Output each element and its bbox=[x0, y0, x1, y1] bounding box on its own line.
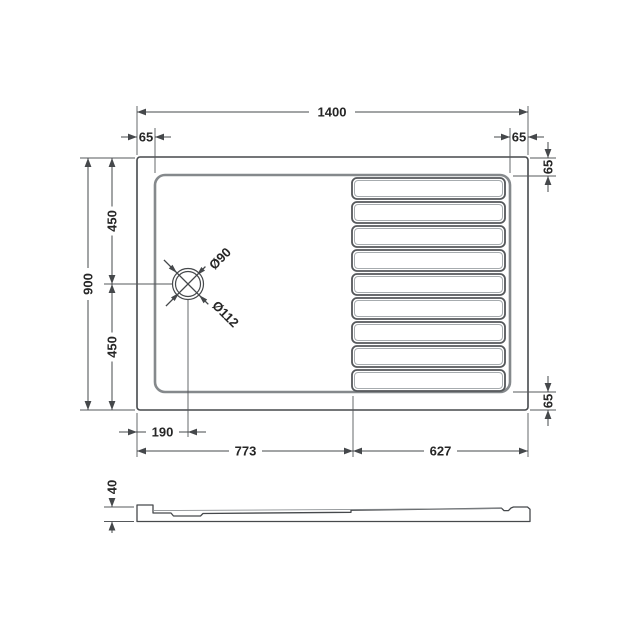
anti-slip-slats bbox=[352, 178, 505, 391]
dim-profile-height: 40 bbox=[104, 476, 134, 533]
dim-profile-height-label: 40 bbox=[105, 480, 120, 494]
dim-overall-depth-label: 900 bbox=[81, 273, 96, 295]
slat bbox=[352, 322, 505, 343]
dim-rim-right-bottom: 65 bbox=[541, 376, 556, 426]
dim-left-section-label: 773 bbox=[235, 444, 257, 459]
slat bbox=[352, 178, 505, 199]
dim-drain-offset-label: 190 bbox=[152, 425, 174, 440]
dim-left-section: 773 bbox=[137, 444, 353, 459]
dim-rim-top-right-label: 65 bbox=[512, 130, 526, 145]
dim-overall-depth: 900 bbox=[81, 158, 96, 410]
slat bbox=[352, 202, 505, 223]
slat bbox=[352, 274, 505, 295]
side-profile-view: 40 bbox=[104, 476, 530, 533]
dim-depth-lower-label: 450 bbox=[105, 336, 120, 358]
dim-depth-upper: 450 bbox=[105, 158, 120, 284]
dim-drain-offset: 190 bbox=[119, 425, 206, 440]
technical-drawing: Ø90 Ø112 1400 bbox=[0, 0, 640, 640]
profile-outline bbox=[137, 505, 530, 522]
dim-overall-width: 1400 bbox=[137, 105, 528, 120]
slat bbox=[352, 226, 505, 247]
dim-rim-right-top: 65 bbox=[541, 142, 556, 192]
dim-overall-width-label: 1400 bbox=[318, 105, 347, 120]
dim-rim-top-left: 65 bbox=[121, 130, 171, 145]
drawing-canvas: Ø90 Ø112 1400 bbox=[0, 0, 640, 640]
slat bbox=[352, 346, 505, 367]
dim-rim-right-bottom-label: 65 bbox=[541, 394, 556, 408]
dim-right-section-label: 627 bbox=[430, 444, 452, 459]
dim-rim-top-left-label: 65 bbox=[139, 130, 153, 145]
dim-right-section: 627 bbox=[353, 444, 528, 459]
dim-depth-upper-label: 450 bbox=[105, 210, 120, 232]
slat bbox=[352, 298, 505, 319]
slat bbox=[352, 250, 505, 271]
dim-rim-top-right: 65 bbox=[494, 130, 544, 145]
slat bbox=[352, 370, 505, 391]
dim-rim-right-top-label: 65 bbox=[541, 160, 556, 174]
plan-view: Ø90 Ø112 bbox=[104, 157, 528, 437]
dim-depth-lower: 450 bbox=[105, 284, 120, 410]
